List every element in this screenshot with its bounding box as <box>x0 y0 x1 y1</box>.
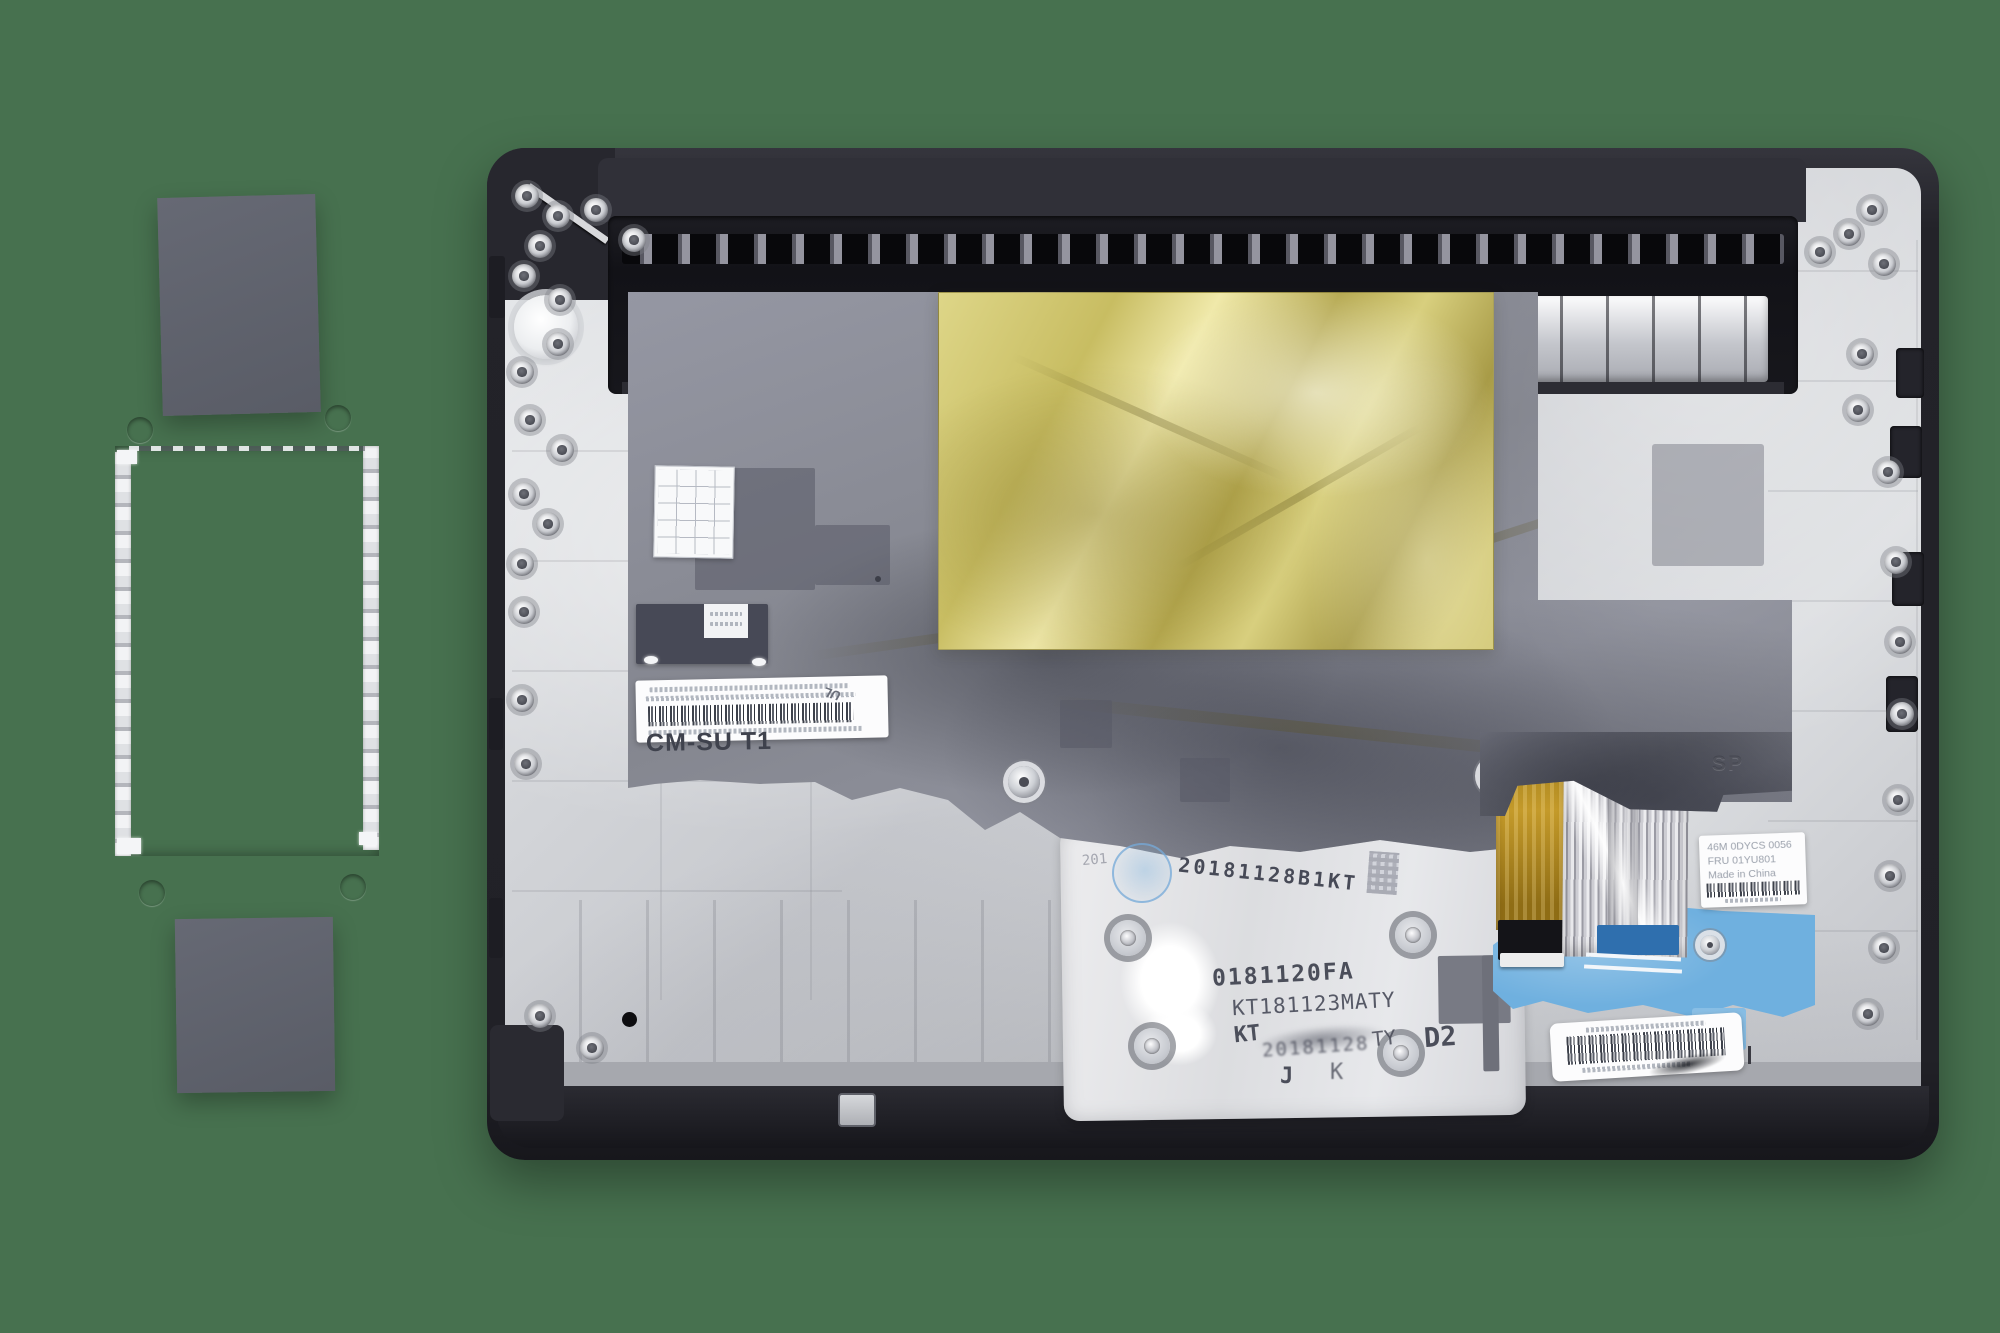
label-barcode <box>648 702 853 726</box>
stamp-mark-k: K <box>1330 1060 1343 1085</box>
screw-boss <box>528 234 552 258</box>
window-edge-top <box>129 446 365 451</box>
datamatrix-code <box>1367 851 1400 895</box>
sticker-microtext <box>710 622 742 626</box>
grid-test-label <box>653 465 735 558</box>
screw-boss <box>1860 198 1884 222</box>
screw-boss <box>1846 398 1870 422</box>
edge-notch <box>489 898 503 958</box>
backplate-screw-post <box>1395 917 1431 953</box>
screw-boss <box>580 1036 604 1060</box>
screw-boss <box>1888 630 1912 654</box>
screw-boss <box>1856 1002 1880 1026</box>
stamp-overstamp-right: TY <box>1371 1025 1397 1051</box>
screw-boss <box>514 752 538 776</box>
screw-boss <box>1884 550 1908 574</box>
bottom-edge-tick <box>1748 1046 1751 1064</box>
backplate-screw-post <box>1134 1028 1170 1064</box>
gold-foil-sticker <box>938 292 1494 650</box>
mylar-model-marking: CM-SU T1 <box>646 727 773 758</box>
vent-slots <box>622 234 1784 264</box>
edge-notch <box>489 698 503 750</box>
screw-boss <box>1872 252 1896 276</box>
sensor-bracket <box>636 604 768 664</box>
screw-boss <box>515 184 539 208</box>
screw-boss <box>1850 342 1874 366</box>
keyboard-screw <box>1008 766 1040 798</box>
shield-emboss-text: SP <box>1712 752 1744 776</box>
screw-boss <box>622 228 646 252</box>
fru-label-barcode <box>1706 880 1800 897</box>
product-photo-laptop-palmrest: UL CM-SU T1 201 20181128B1KT 0181120FA K… <box>0 0 2000 1333</box>
foil-crease <box>1010 352 1287 481</box>
screw-boss <box>512 482 536 506</box>
stamp-faint-prefix: 201 <box>1081 851 1108 869</box>
screw-boss <box>512 600 536 624</box>
fru-label: 46M 0DYCS 0056 FRU 01YU801 Made in China <box>1699 832 1807 908</box>
screw-boss <box>510 688 534 712</box>
stamp-mark-j: J <box>1280 1064 1293 1089</box>
edge-notch <box>489 256 505 318</box>
adhesive-patch <box>1180 758 1230 802</box>
fru-label-line2: FRU 01YU801 <box>1707 853 1776 867</box>
fru-label-line1: 46M 0DYCS 0056 <box>1707 839 1792 854</box>
screw-boss <box>546 204 570 228</box>
screw-boss <box>1808 240 1832 264</box>
bracket-top-tab <box>157 194 321 416</box>
window-corner-bl <box>117 838 141 854</box>
screw-boss <box>1872 936 1896 960</box>
screw-boss <box>518 408 542 432</box>
window-corner-br <box>359 832 377 845</box>
screw-boss <box>536 512 560 536</box>
bracket-part <box>0 0 440 1140</box>
fru-label-microdigits <box>1725 897 1781 903</box>
bottom-latch <box>838 1093 876 1127</box>
side-port-cutout <box>1896 348 1924 398</box>
bracket-hole <box>127 417 153 443</box>
screw-boss <box>1890 702 1914 726</box>
screw-boss <box>528 1004 552 1028</box>
bracket-hole <box>340 874 366 900</box>
sensor-bracket-sticker <box>704 604 748 638</box>
screw-boss <box>512 264 536 288</box>
screw-boss <box>1886 788 1910 812</box>
screw-boss <box>584 198 608 222</box>
bracket-notch <box>644 656 658 664</box>
screw-boss <box>1878 864 1902 888</box>
adhesive-patch <box>1060 700 1112 748</box>
screw-boss <box>546 332 570 356</box>
bottom-barcode-label <box>1549 1012 1744 1082</box>
window-edge-left <box>115 452 131 856</box>
blue-film-dark-band <box>1597 925 1679 955</box>
bracket-notch <box>752 658 766 666</box>
rubber-foot-dot <box>622 1012 637 1027</box>
screw-boss <box>510 360 534 384</box>
ul-certification-mark: UL <box>815 677 844 704</box>
window-corner-tl <box>117 450 137 464</box>
ffc-connector-white <box>1500 953 1564 967</box>
mylar-dot <box>875 576 881 582</box>
screw-boss <box>550 438 574 462</box>
blue-qc-stamp <box>1112 843 1172 903</box>
screw-boss <box>510 552 534 576</box>
sticker-microtext <box>710 612 742 616</box>
hinge-bottom-left <box>490 1025 564 1121</box>
bracket-bottom-tab <box>175 917 335 1093</box>
rail-shoulder <box>598 158 1806 222</box>
gray-square-patch <box>1652 444 1764 566</box>
bracket-hole <box>325 405 351 431</box>
window-edge-right <box>363 446 379 850</box>
blue-area-screw <box>1700 935 1720 955</box>
screw-boss <box>548 288 572 312</box>
stamp-overstamp-left: KT <box>1233 1021 1262 1049</box>
screw-boss <box>1876 460 1900 484</box>
backplate-screw-post <box>1110 920 1146 956</box>
stamp-position-code: D2 <box>1423 1021 1458 1054</box>
bracket-hole <box>139 880 165 906</box>
screw-boss <box>1837 222 1861 246</box>
fru-label-line3: Made in China <box>1708 867 1776 881</box>
bracket-window <box>115 446 379 856</box>
